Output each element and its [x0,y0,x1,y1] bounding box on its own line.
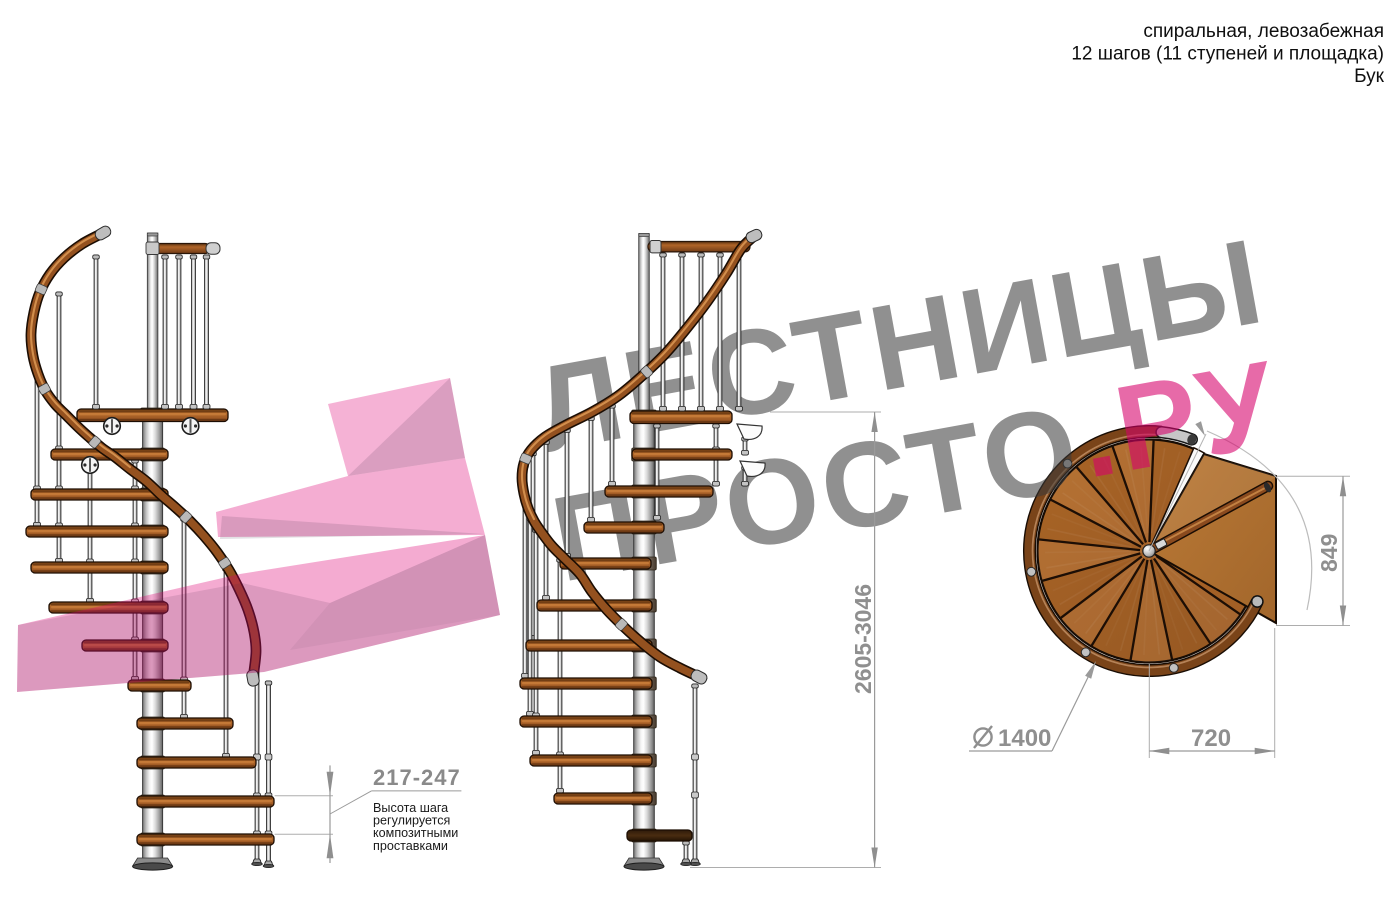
svg-text:12 шагов (11 ступеней и площад: 12 шагов (11 ступеней и площадка) [1071,44,1384,65]
svg-text:849: 849 [1316,534,1342,572]
svg-text:1400: 1400 [998,725,1051,752]
svg-text:проставками: проставками [373,839,448,853]
svg-text:720: 720 [1191,725,1231,752]
svg-text:217-247: 217-247 [373,765,461,790]
svg-text:Бук: Бук [1354,66,1385,87]
svg-text:спиральная, левозабежная: спиральная, левозабежная [1143,21,1384,42]
svg-text:2605-3046: 2605-3046 [850,584,876,694]
